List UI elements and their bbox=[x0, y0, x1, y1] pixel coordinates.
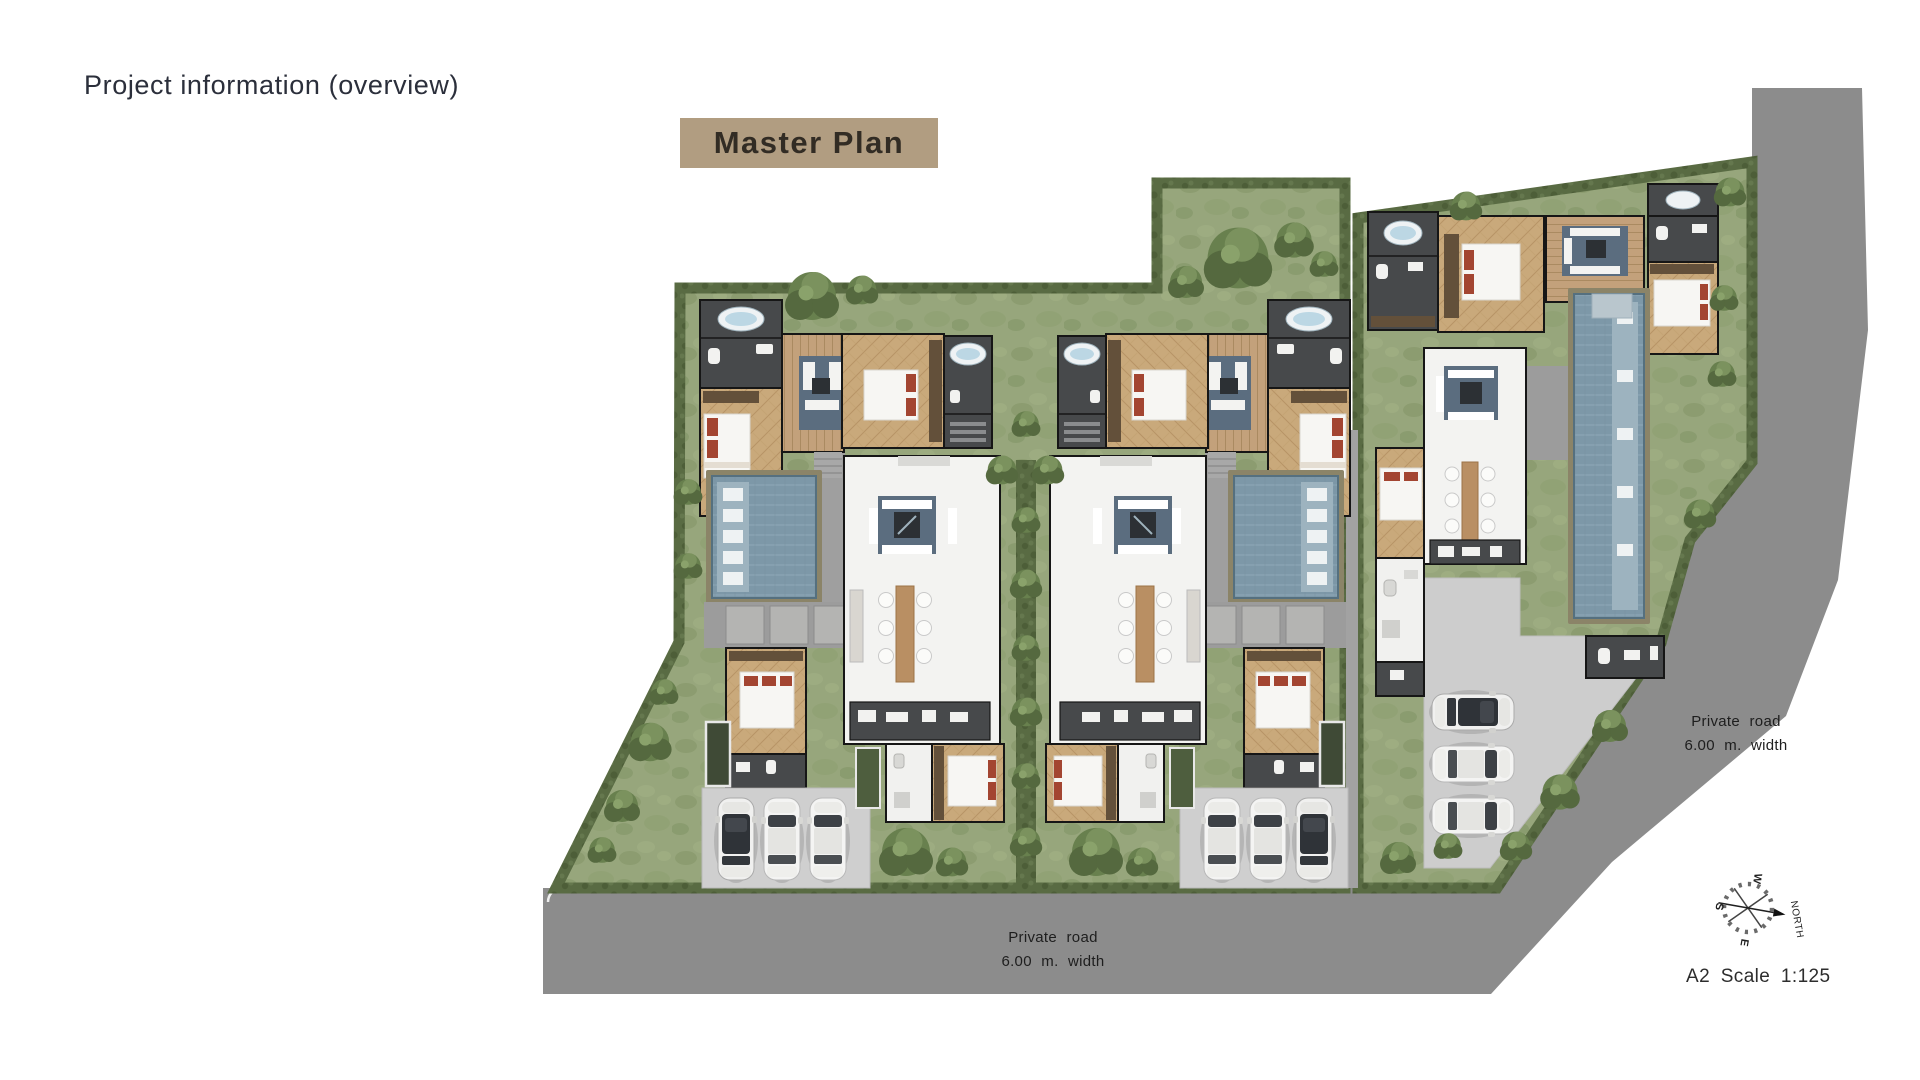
compass-rose-icon: W S E NORTH bbox=[1712, 872, 1805, 947]
second-suite bbox=[1648, 184, 1718, 354]
living-building bbox=[1424, 348, 1526, 564]
compass-west-label: W bbox=[1750, 872, 1764, 885]
private-road-label-right: Private road 6.00 m. width bbox=[1666, 710, 1806, 758]
master-plan-badge: Master Plan bbox=[680, 118, 938, 168]
master-plan-page: W S E NORTH Project information (overvie… bbox=[0, 0, 1920, 1080]
patio bbox=[1526, 366, 1574, 460]
scale-note: A2 Scale 1:125 bbox=[1686, 966, 1830, 988]
road-label-line2: 6.00 m. width bbox=[983, 950, 1123, 974]
villa-2 bbox=[1046, 300, 1350, 888]
site-plan-drawing: W S E NORTH bbox=[0, 0, 1920, 1080]
compass-north-label: NORTH bbox=[1788, 900, 1805, 939]
master-plan-badge-label: Master Plan bbox=[714, 125, 905, 161]
jacuzzi-bath-suite bbox=[1368, 212, 1438, 330]
compass-south-label: S bbox=[1712, 902, 1725, 911]
road-label-line1: Private road bbox=[983, 926, 1123, 950]
pool-bathroom bbox=[1586, 636, 1664, 678]
road-label-line1: Private road bbox=[1666, 710, 1806, 734]
guest-bedroom bbox=[1376, 448, 1424, 696]
compass-east-label: E bbox=[1737, 938, 1750, 947]
road-label-line2: 6.00 m. width bbox=[1666, 734, 1806, 758]
villa-1 bbox=[700, 300, 1004, 888]
north-arrow bbox=[1718, 899, 1786, 919]
master-bedroom bbox=[1438, 216, 1544, 332]
parking-cars bbox=[1429, 690, 1514, 838]
pool bbox=[1568, 288, 1650, 624]
page-title: Project information (overview) bbox=[84, 70, 459, 101]
private-road-label-bottom: Private road 6.00 m. width bbox=[983, 926, 1123, 974]
